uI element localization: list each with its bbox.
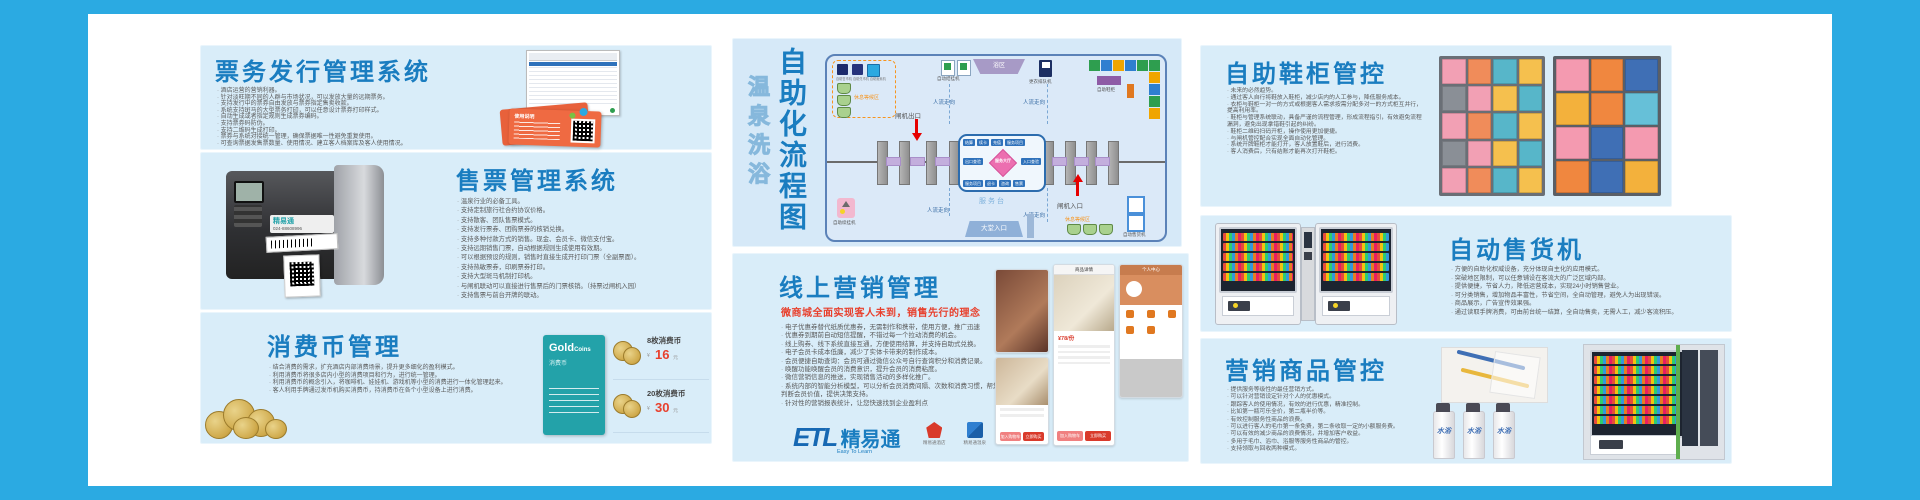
bullet: 衣柜与鞋柜一对一的方式或根据客人需求按需分配多对一的方式柜互并行，提高利用率。 xyxy=(1227,102,1427,116)
bullet-list: 温泉行业的必备工具。支持定制旅行社合约协议价格。支持散客、团队售票模式。支持发行… xyxy=(457,197,702,300)
bottle: 水浴 xyxy=(1493,411,1515,459)
locker-photo xyxy=(1439,56,1545,196)
phone-detail-title: 商品详情 xyxy=(1054,265,1114,275)
price-unit: 元 xyxy=(673,354,678,361)
phone-screenshot-spa xyxy=(995,269,1049,353)
spreadsheet-toolbar xyxy=(529,53,617,61)
phone-screenshot-bath: 加入购物车 立即购买 xyxy=(995,357,1049,445)
bullet: 支持售票与前台开牌的联动。 xyxy=(457,291,702,300)
bullet: 支持领取与回收两种模式。 xyxy=(1227,446,1432,453)
arrow-down-head-icon xyxy=(912,133,922,141)
toothbrush-kit-photo xyxy=(1441,347,1548,403)
vending-machine-label: 自动售货机 xyxy=(1123,232,1146,238)
status-dot-icon xyxy=(610,108,615,113)
card-subtitle: 消费币 xyxy=(543,356,605,369)
bullet: 突破地区限制，可以任意铺设在客流大的广泛区域内部。 xyxy=(1451,275,1716,284)
qr-label xyxy=(283,254,320,297)
bullet-list: 未来的必然趋势。通过客人自行将鞋放入鞋柜，减少店内的人工参与，降低服务成本。衣柜… xyxy=(1227,88,1427,156)
bullet: 商品展示，广告宣传效果强。 xyxy=(1451,300,1716,309)
bullet: 鞋柜二维码扫码开柜，操作使用更加便捷。 xyxy=(1227,129,1427,136)
bullet: 温泉行业的必备工具。 xyxy=(457,197,702,206)
gold-coin-card: GoldCoins 消费币 xyxy=(543,335,605,435)
vending-machine-icon xyxy=(1127,196,1145,214)
ticket-card-label: 使用说明 xyxy=(514,113,534,121)
phone-screenshot-product: 商品详情 ¥78/份 加入购物车 立即购买 xyxy=(1053,264,1115,446)
price-currency: ¥ xyxy=(647,353,650,359)
gate-bar xyxy=(910,157,925,166)
waiting-machine-label: 自助兑币机 xyxy=(853,76,869,81)
bullet: 支持散客、团队售票模式。 xyxy=(457,216,702,225)
printer-phone: 024-88608996 xyxy=(273,226,331,231)
price-currency: ¥ xyxy=(647,406,650,412)
bullet: 通过读取手牌消费，可由前台统一结算，全自动售卖，无需人工，减少客流积压。 xyxy=(1451,309,1716,318)
panel-title: 售票管理系统 xyxy=(456,161,618,196)
price-name: 8枚消费币 xyxy=(647,335,681,346)
bottles-photo: 水浴 水浴 水浴 xyxy=(1423,409,1573,459)
phone-screenshot-profile: 个人中心 xyxy=(1119,264,1183,398)
vending-machine-photo xyxy=(1583,344,1725,460)
hub-chip: 结算 xyxy=(963,139,975,146)
hub-chip: 充值 xyxy=(991,139,1003,146)
add-to-cart-button: 加入购物车 xyxy=(1000,432,1021,441)
card-title2: Coins xyxy=(574,347,591,353)
ticket-card-textlines xyxy=(514,121,561,141)
hub-chip: 入口查验 xyxy=(1021,158,1041,165)
etl-app-label: 精易通酒店 xyxy=(923,440,946,446)
qr-code-icon xyxy=(290,262,315,287)
floorplan: 结算 续卡 充值 服务项目 出口查验 入口查验 服务项目 退卡 咨询 售票 服务… xyxy=(825,54,1167,242)
lobby-pillar xyxy=(1027,214,1034,238)
bullet-list: 提供服务等级性的最佳营销方式。可以针对营销设定针对个人的优惠模式。跟踪客人的使用… xyxy=(1227,387,1432,454)
bullet: 微信营销信息的推送，实现销售活动的多样化推广。 xyxy=(781,374,1013,382)
bullet: 可查询票据发售票数量、使用情况、建立客人档案库及客人使用情况。 xyxy=(217,141,477,148)
bath-zone: 浴区 xyxy=(973,59,1025,74)
waiting-area: 自助售币机 自助兑币机 自助贩卖机 休息等候区 xyxy=(832,60,896,118)
checkin-machine-icon xyxy=(941,60,955,76)
panel-subtitle: 微商城全面实现客人未到，销售先行的理念 xyxy=(781,304,981,319)
hub-center-label: 服务大厅 xyxy=(991,158,1015,164)
queue-machine-icon xyxy=(1039,60,1052,77)
flow-label: 人流走向 xyxy=(927,206,949,214)
bullet: 方便的自助化权威设备，充分体现自主化的应用模式。 xyxy=(1451,266,1716,275)
bullet: 支持大型斑马机制打印机。 xyxy=(457,272,702,281)
etl-app: 精易通酒店 xyxy=(923,422,946,446)
gate-bar xyxy=(1052,157,1067,166)
bullet: 票券与系统对接统一管理，确保票据唯一性避免重复使用。 xyxy=(217,134,477,141)
bullet: 未来的必然趋势。 xyxy=(1227,88,1427,95)
bullet: 支持远期销售门票，自动根据规则生成使用有效期。 xyxy=(457,244,702,253)
arrow-up-icon xyxy=(1076,182,1079,196)
etl-tagline: Easy To Learn xyxy=(837,449,993,455)
flow-label: 人流走向 xyxy=(1023,98,1045,106)
smiley-icon xyxy=(1233,303,1238,308)
price-value: 30 xyxy=(655,400,669,415)
etl-app: 精易通温泉 xyxy=(964,422,987,446)
printer-image: 精易通 024-88608996 xyxy=(226,163,386,301)
panel-online-marketing: 线上营销管理 微商城全面实现客人未到，销售先行的理念 电子优惠券替代纸质优惠券，… xyxy=(732,253,1189,462)
gate-bar xyxy=(1095,157,1110,166)
shoe-cabinet-column xyxy=(1149,60,1160,119)
hub-chip: 退卡 xyxy=(985,180,997,187)
card-textlines xyxy=(549,383,599,413)
poster-root: 票务发行管理系统 酒店运营的营销利器。针对淡旺期不同的人群与市场状况，可以发放大… xyxy=(0,0,1920,500)
printer-screen xyxy=(234,181,264,203)
service-hub: 结算 续卡 充值 服务项目 出口查验 入口查验 服务项目 退卡 咨询 售票 服务… xyxy=(958,134,1046,192)
waiting-machine-label: 自助贩卖机 xyxy=(870,76,886,81)
price-name: 20枚消费币 xyxy=(647,388,685,399)
shoe-cabinet-bin xyxy=(1127,84,1134,98)
bullet: 客人消费后，只有结账才能再次打开鞋柜。 xyxy=(1227,149,1427,156)
arrow-down-icon xyxy=(915,119,918,133)
bullet: 支持多种付款方式的销售。现金、会员卡、微信支付宝。 xyxy=(457,235,702,244)
rest-area-label: 休息等候区 xyxy=(1065,216,1090,223)
etl-brand: 精易通 xyxy=(841,429,901,451)
buy-now-button: 立即购买 xyxy=(1023,432,1044,441)
printer-buttons xyxy=(234,205,262,227)
bullet: 比如第一瓶可乐全价，第二瓶半价等。 xyxy=(1227,409,1432,416)
locker-photo xyxy=(1553,56,1661,196)
panel-title: 消费币管理 xyxy=(267,327,402,362)
waiting-area-label: 休息等候区 xyxy=(854,94,879,101)
gate-entry-label: 闸机入口 xyxy=(1057,200,1083,210)
printer-brand: 精易通 xyxy=(273,216,331,226)
panel-ticket-issuing: 票务发行管理系统 酒店运营的营销利器。针对淡旺期不同的人群与市场状况，可以发放大… xyxy=(200,45,712,150)
panel-goods-control: 营销商品管控 提供服务等级性的最佳营销方式。可以针对营销设定针对个人的优惠模式。… xyxy=(1200,338,1732,464)
bullet: 支持定制旅行社合约协议价格。 xyxy=(457,206,702,215)
panel-flow-diagram: 温泉洗浴 自助化流程图 结算 续 xyxy=(732,38,1182,247)
vending-machines-image xyxy=(1215,223,1395,325)
panel-title: 线上营销管理 xyxy=(779,268,941,303)
bullet-list: 酒店运营的营销利器。针对淡旺期不同的人群与市场状况，可以发放大量的远期票务。支持… xyxy=(217,88,477,147)
panel-title: 营销商品管控 xyxy=(1225,351,1387,386)
qr-code-icon xyxy=(571,119,596,144)
coin-seller-machine-icon xyxy=(837,64,848,75)
bullet: 通过客人自行将鞋放入鞋柜，减少店内的人工参与，降低服务成本。 xyxy=(1227,95,1427,102)
panel-title: 票务发行管理系统 xyxy=(215,52,431,87)
buy-now-button: 立即购买 xyxy=(1085,431,1111,441)
bullet: 结合消费的需求，扩充酒店内部消费场景，提升更多细化的盈利模式。 xyxy=(269,365,559,373)
flow-path xyxy=(949,188,950,216)
panel-title: 自动售货机 xyxy=(1449,230,1584,265)
shoe-cabinet-label: 自助鞋柜 xyxy=(1097,87,1115,93)
bullet: 针对性的营销报表统计，让您快速找到企业盈利点 xyxy=(781,400,1013,408)
flow-label: 人流走向 xyxy=(933,98,955,106)
gate-bar xyxy=(886,157,901,166)
bench-icon xyxy=(1067,224,1113,235)
spreadsheet-rows xyxy=(529,67,617,107)
vending-machine-icon xyxy=(1127,214,1145,232)
queue-machine-label: 更衣排队机 xyxy=(1029,79,1052,85)
coins-image xyxy=(203,385,333,439)
cube-icon xyxy=(967,422,983,438)
bottle: 水浴 xyxy=(1463,411,1485,459)
hub-chip: 咨询 xyxy=(999,180,1011,187)
bullet: 会员便捷自助查询：会员可通过微信公众号自行查询积分和消费记录。 xyxy=(781,358,1013,366)
hub-chip: 服务项目 xyxy=(963,180,983,187)
printer-side-panel xyxy=(334,165,384,285)
bullet: 可以有效的减少商品的浪费情况，并增加客户收益。 xyxy=(1227,431,1432,438)
bullet: 可以针对营销设定针对个人的优惠模式。 xyxy=(1227,394,1432,401)
hub-chip: 售票 xyxy=(1013,180,1025,187)
bench-icon xyxy=(837,83,851,118)
hang-machine-icon xyxy=(837,198,855,218)
checkin-machine-label: 自动结挂机 xyxy=(937,76,960,82)
hub-chip: 续卡 xyxy=(977,139,989,146)
bottle-label: 水浴 xyxy=(1434,426,1454,436)
panel-vending-machine: 自动售货机 方便的自助化权威设备，充分体现自主化的应用模式。突破地区限制，可以任… xyxy=(1200,215,1732,332)
horse-icon xyxy=(926,422,942,438)
bullet: 支持发行中的票券自由发放与票券指定售卖收款。 xyxy=(217,101,477,108)
price-value: 16 xyxy=(655,347,669,362)
bottle: 水浴 xyxy=(1433,411,1455,459)
etl-letters: ETL xyxy=(793,422,836,452)
waiting-machine-label: 自助售币机 xyxy=(836,76,852,81)
bullet: 支持热敏票券，印刷票券打印。 xyxy=(457,263,702,272)
diagram-subtitle-vertical: 温泉洗浴 xyxy=(741,75,773,191)
flow-path xyxy=(1047,188,1048,222)
price-item: 20枚消费币 ¥ 30 元 xyxy=(613,380,709,433)
bullet: 系统内部的智能分析模型，可以分析会员消费间隔、次数和消费习惯，帮您精准判断会员价… xyxy=(781,383,1013,400)
flow-path xyxy=(1047,84,1048,124)
hub-chip: 服务项目 xyxy=(1005,139,1025,146)
bullet: 优惠券到期前自动短信提醒，不错过每一个拉动消费的机会。 xyxy=(781,332,1013,340)
service-desk-label: 服务台 xyxy=(979,196,1006,206)
printer-label: 精易通 024-88608996 xyxy=(270,215,334,233)
spreadsheet-header-row xyxy=(529,62,617,66)
hub-chip: 出口查验 xyxy=(963,158,983,165)
coin-price-list: 8枚消费币 ¥ 16 元 20枚消费币 ¥ 30 元 xyxy=(613,327,709,437)
bullet: 与闸机联动可以直接进行售票后的门票核销。（持票过闸机入园） xyxy=(457,282,702,291)
bullet: 线上购券、线下系统直接互通，方便使用结算，并支持自助式兑换。 xyxy=(781,341,1013,349)
bullet: 鞋柜与管理系统联动，具备严谨的流程管理，形成流程指引，有效避免流程漏洞，避免出现… xyxy=(1227,115,1427,129)
dot-decoration-icon xyxy=(579,108,587,116)
panel-title: 自助鞋柜管控 xyxy=(1225,54,1387,89)
phone-profile-title: 个人中心 xyxy=(1120,265,1182,275)
shoe-cabinet-row xyxy=(1089,60,1148,71)
diagram-title-vertical: 自助化流程图 xyxy=(771,47,811,233)
etl-app-label: 精易通温泉 xyxy=(964,440,987,446)
ticket-card: 使用说明 xyxy=(508,108,601,147)
panel-ticket-selling: 售票管理系统 温泉行业的必备工具。支持定制旅行社合约协议价格。支持散客、团队售票… xyxy=(200,152,712,310)
gate-bar xyxy=(1074,157,1089,166)
bottle-label: 水浴 xyxy=(1494,426,1514,436)
bullet: 提供便捷，节省人力，降低运营成本，实现24小时销售营业。 xyxy=(1451,283,1716,292)
checkin-machine-icon xyxy=(957,60,971,76)
shoe-cabinet-kiosk xyxy=(1097,76,1121,85)
add-to-cart-button: 加入购物车 xyxy=(1057,431,1083,441)
arrow-up-head-icon xyxy=(1073,174,1083,182)
price-item: 8枚消费币 ¥ 16 元 xyxy=(613,327,709,380)
gate-bar xyxy=(935,157,950,166)
bullet: 电子会员卡成本低廉，减少了实体卡带来的制作成本。 xyxy=(781,349,1013,357)
coin-exchange-machine-icon xyxy=(852,64,863,75)
bottle-label: 水浴 xyxy=(1464,426,1484,436)
bullet: 有效控制服务性商品的浪费。 xyxy=(1227,417,1432,424)
bullet-list: 电子优惠券替代纸质优惠券，无需制作和携带，使用方便，推广迅速优惠券到期前自动短信… xyxy=(781,324,1013,408)
card-title: Gold xyxy=(549,342,574,354)
bullet: 自动生成或者指定规则生成票券编码。 xyxy=(217,114,477,121)
bullet: 支持发行票券、团购票券的核销兑换。 xyxy=(457,225,702,234)
bullet: 可以根据预设的规则，销售时直接生成开打印门票（全副票面）。 xyxy=(457,253,702,262)
panel-coin-management: 消费币管理 结合消费的需求，扩充酒店内部消费场景，提升更多细化的盈利模式。利用消… xyxy=(200,312,712,444)
smiley-icon xyxy=(1333,303,1338,308)
phone-price: ¥78/份 xyxy=(1058,334,1110,342)
bullet-list: 方便的自助化权威设备，充分体现自主化的应用模式。突破地区限制，可以任意铺设在客流… xyxy=(1451,266,1716,318)
bullet: 酒店运营的营销利器。 xyxy=(217,88,477,95)
lobby-entrance: 大堂入口 xyxy=(965,221,1023,237)
hang-machine-label: 自助续挂机 xyxy=(833,220,856,226)
price-unit: 元 xyxy=(673,407,678,414)
panel-shoe-cabinet: 自助鞋柜管控 未来的必然趋势。通过客人自行将鞋放入鞋柜，减少店内的人工参与，降低… xyxy=(1200,45,1672,207)
bullet: 支持票券码防伪。 xyxy=(217,121,477,128)
